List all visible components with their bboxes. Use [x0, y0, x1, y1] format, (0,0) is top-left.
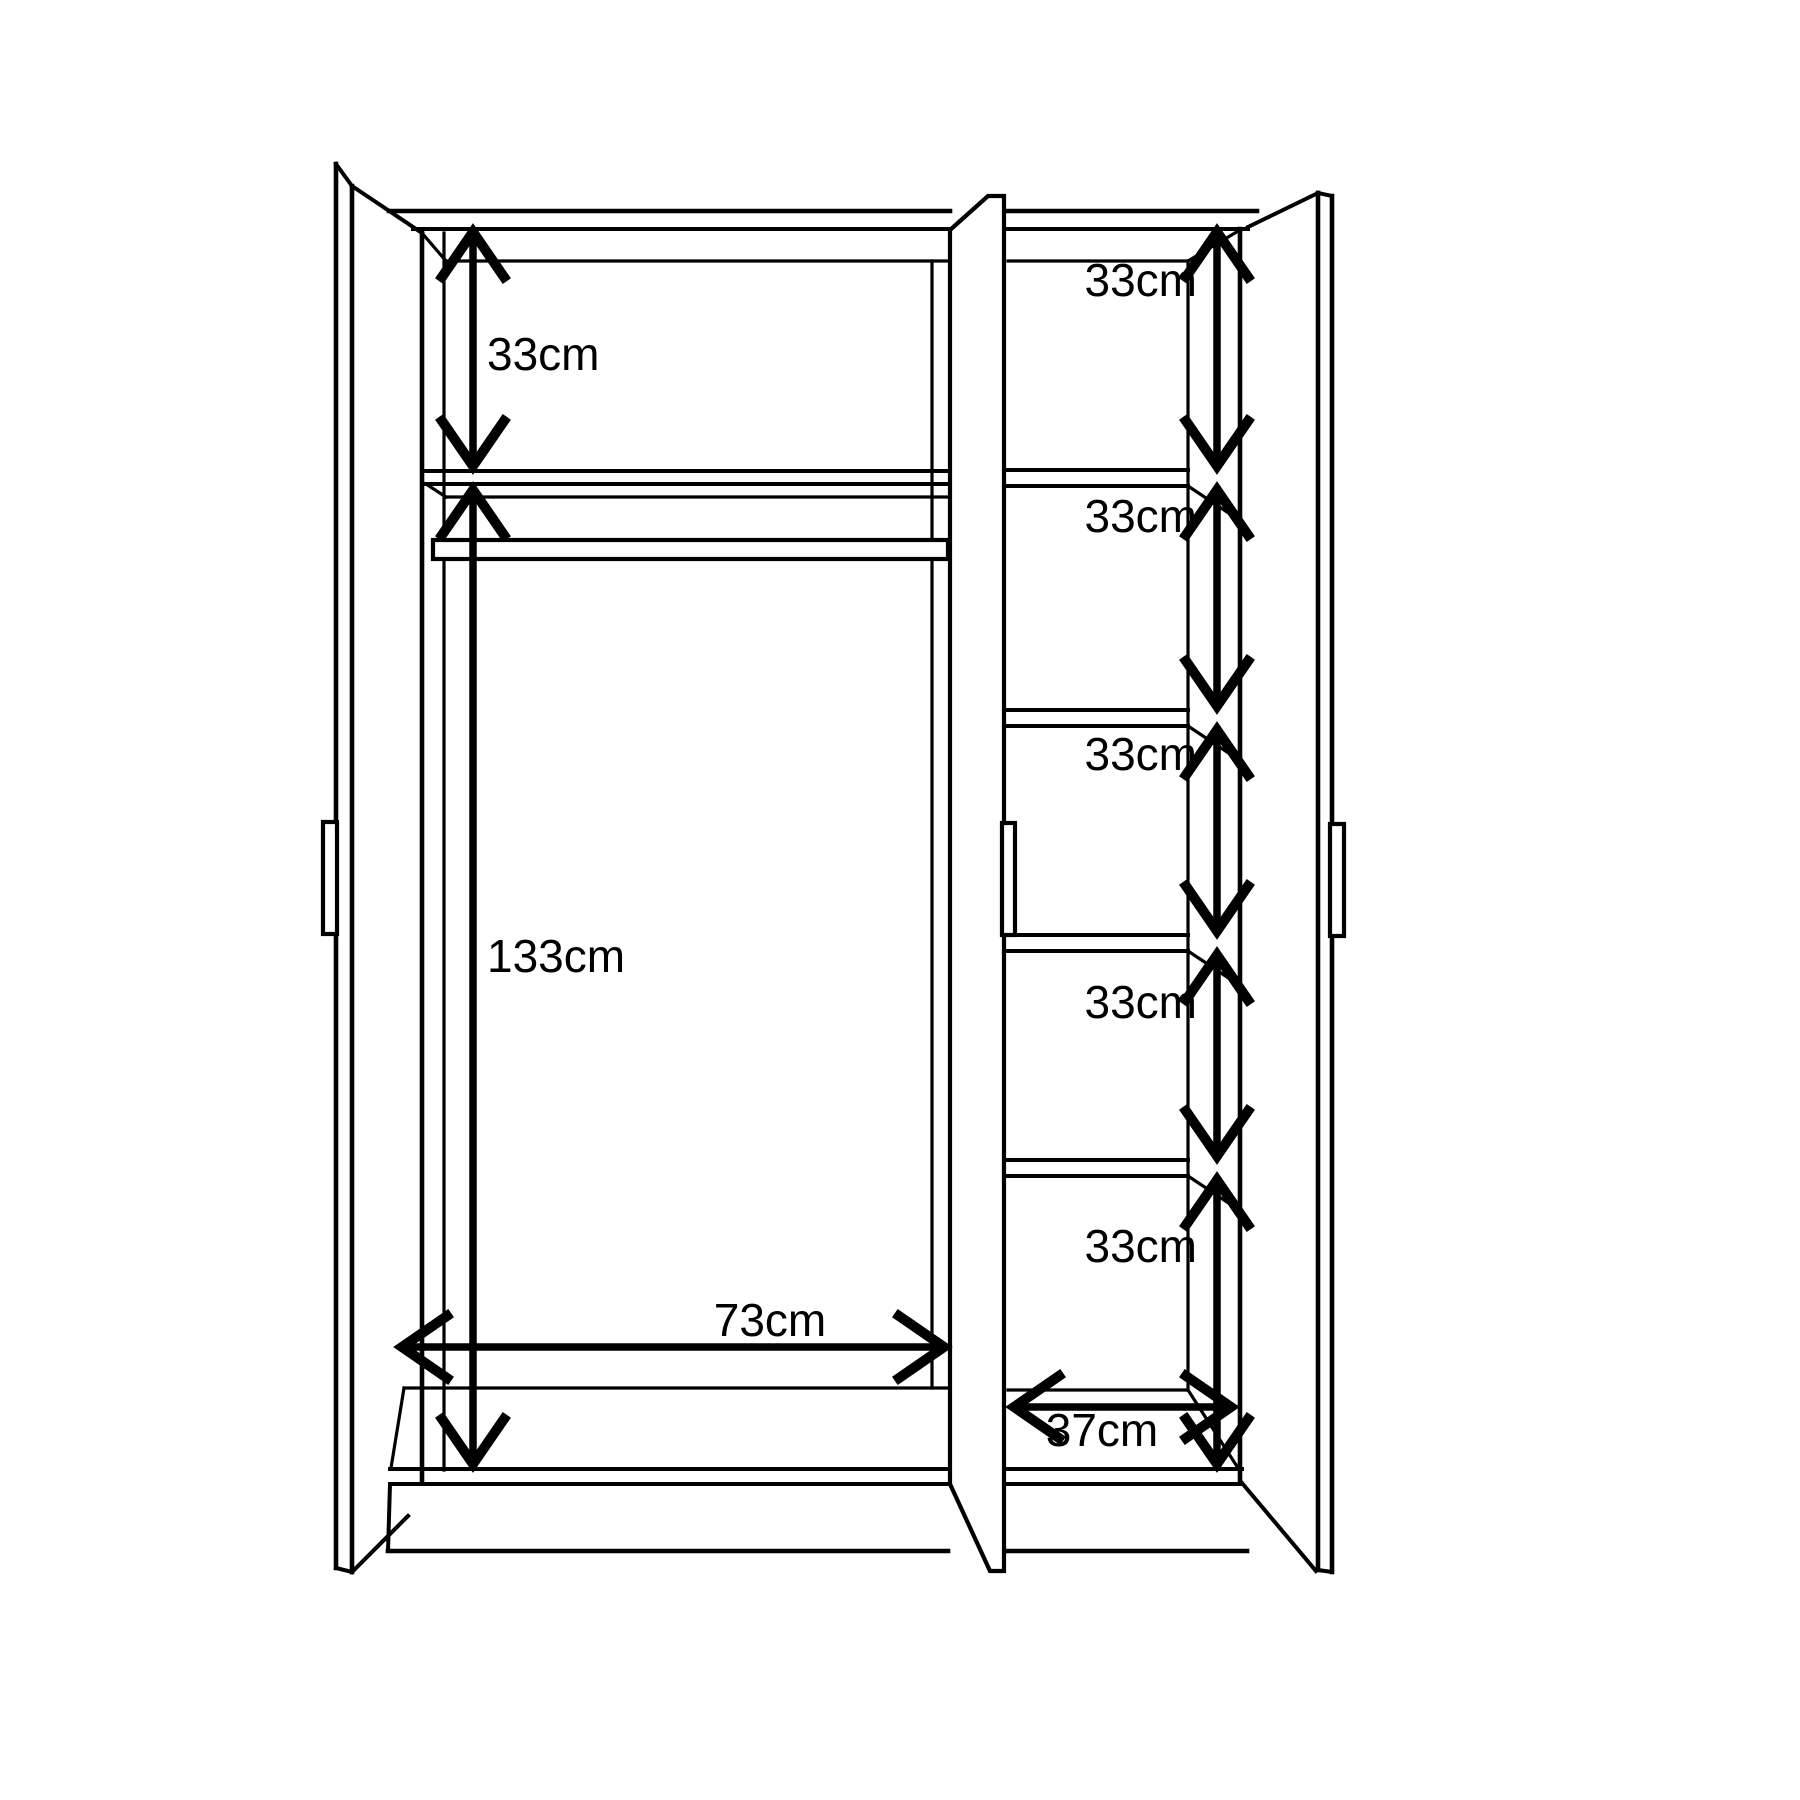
- left-door: [323, 164, 422, 1572]
- plinth-left-edge: [388, 1484, 390, 1551]
- middle-door-panel: [950, 196, 1004, 1571]
- left-door-handle: [323, 822, 337, 934]
- right-door-bottom-edge: [1318, 1570, 1332, 1572]
- dim-label-right-compartment-4: 33cm: [1085, 976, 1197, 1028]
- middle-door: [950, 196, 1015, 1571]
- top-shelf: [426, 471, 948, 497]
- left-door-bottom-slant: [352, 1516, 408, 1572]
- dim-label-right-width: 37cm: [1046, 1404, 1158, 1456]
- dim-label-left-hanging-space: 133cm: [487, 930, 625, 982]
- middle-door-handle: [1002, 823, 1015, 935]
- left-compartment: [426, 471, 948, 559]
- right-shelf-3: [1008, 935, 1230, 979]
- wardrobe-technical-diagram: 33cm 133cm 73cm 33cm 33cm: [0, 0, 1800, 1800]
- dim-label-right-compartment-5: 33cm: [1085, 1220, 1197, 1272]
- diagram-canvas: 33cm 133cm 73cm 33cm 33cm: [0, 0, 1800, 1800]
- right-door: [1242, 193, 1344, 1572]
- floor-left-wedge: [391, 1388, 404, 1468]
- left-door-bottom-edge: [336, 1568, 352, 1572]
- dim-label-right-compartment-2: 33cm: [1085, 490, 1197, 542]
- right-door-handle: [1330, 824, 1344, 936]
- right-shelf-4: [1008, 1160, 1230, 1204]
- dim-arrow-left-width: [402, 1316, 944, 1378]
- dim-label-right-compartment-3: 33cm: [1085, 728, 1197, 780]
- dim-label-right-compartment-1: 33cm: [1085, 254, 1197, 306]
- right-door-bottom-slant: [1242, 1483, 1316, 1571]
- dim-label-left-top-space: 33cm: [487, 328, 599, 380]
- right-column-shelves: [1008, 470, 1230, 1204]
- dimension-annotations: 33cm 133cm 73cm 33cm 33cm: [402, 232, 1248, 1464]
- hanging-rail: [433, 540, 948, 559]
- left-door-top-edge: [336, 164, 352, 186]
- dim-label-left-width: 73cm: [714, 1294, 826, 1346]
